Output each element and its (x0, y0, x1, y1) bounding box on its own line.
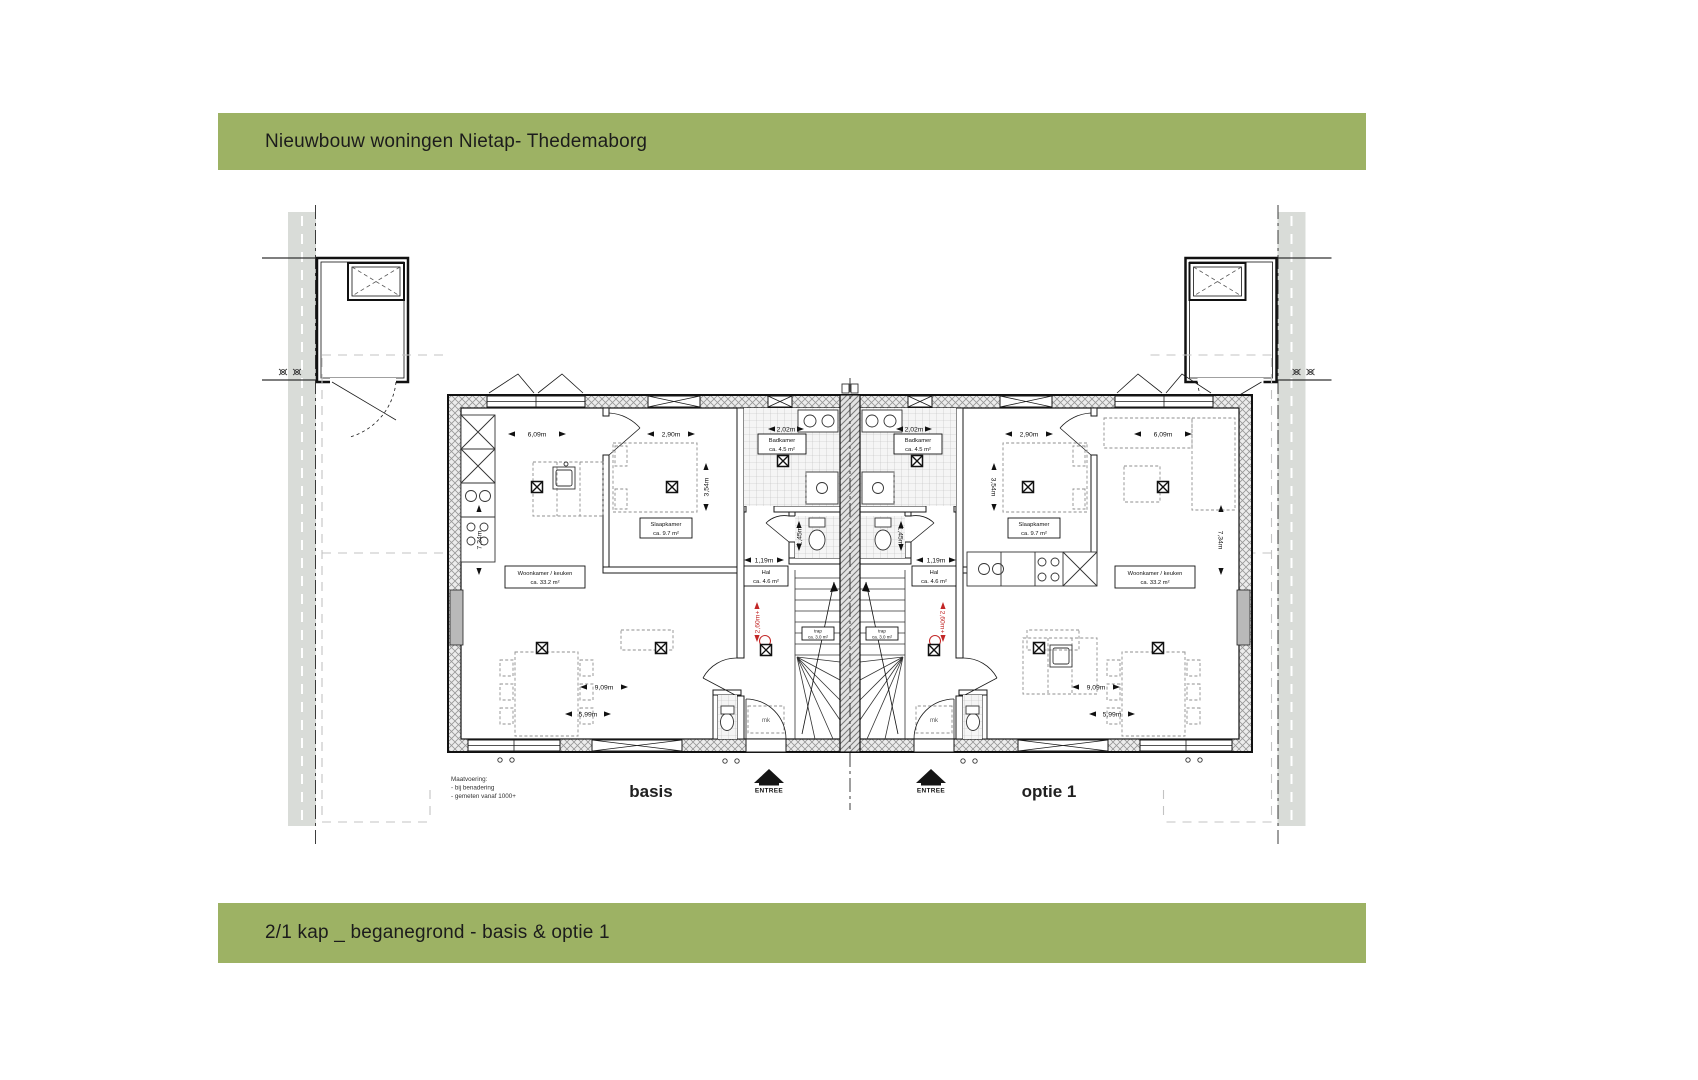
room-label-bedroom-right: Slaapkamer ca. 9.7 m² (1008, 518, 1060, 538)
svg-text:Slaapkamer: Slaapkamer (651, 522, 682, 528)
svg-text:1,19m: 1,19m (927, 557, 946, 564)
svg-text:Badkamer: Badkamer (905, 438, 931, 444)
entree-marker: ENTREE (916, 769, 946, 795)
room-label-bedroom-left: Slaapkamer ca. 9.7 m² (640, 518, 692, 538)
svg-text:5,99m: 5,99m (579, 711, 598, 718)
svg-text:ca. 4.5 m²: ca. 4.5 m² (769, 447, 795, 453)
svg-text:Badkamer: Badkamer (769, 438, 795, 444)
front-door-opening (746, 739, 786, 752)
svg-text:7,34m: 7,34m (1217, 531, 1224, 550)
light-point-icon (929, 645, 940, 656)
svg-text:ca. 4.6 m²: ca. 4.6 m² (753, 579, 779, 585)
light-point-icon (778, 456, 789, 467)
roadside-strip (288, 212, 316, 826)
drawing-sheet: Nieuwbouw woningen Nietap- Thedemaborg (0, 0, 1698, 1080)
svg-text:ca. 9.7 m²: ca. 9.7 m² (653, 531, 679, 537)
room-label-living-left: Woonkamer / keuken ca. 33.2 m² (505, 566, 585, 588)
svg-text:ca. 33.2 m²: ca. 33.2 m² (531, 580, 560, 586)
room-label-stairs-right: trap ca. 3.0 m² (866, 627, 898, 640)
mk-label-left: mk (762, 718, 771, 724)
svg-text:ca. 9.7 m²: ca. 9.7 m² (1021, 531, 1047, 537)
svg-text:5,99m: 5,99m (1103, 711, 1122, 718)
light-point-icon (532, 482, 543, 493)
svg-text:6,09m: 6,09m (528, 431, 547, 438)
entree-marker: ENTREE (754, 769, 784, 795)
measurement-note: Maatvoering: - bij benadering - gemeten … (451, 776, 516, 800)
light-point-icon (667, 482, 678, 493)
mk-label-right: mk (930, 718, 939, 724)
svg-text:Maatvoering:: Maatvoering: (451, 776, 488, 783)
svg-text:trap: trap (814, 629, 822, 634)
svg-text:ca. 3.0 m²: ca. 3.0 m² (872, 635, 893, 640)
svg-text:ENTREE: ENTREE (917, 788, 946, 795)
footer-banner: 2/1 kap _ beganegrond - basis & optie 1 (218, 903, 1366, 963)
svg-text:Woonkamer / keuken: Woonkamer / keuken (518, 571, 573, 577)
svg-text:2,90m: 2,90m (662, 431, 681, 438)
skylight (348, 263, 404, 300)
svg-text:7,34m: 7,34m (476, 530, 483, 549)
room-label-stairs-left: trap ca. 3.0 m² (802, 627, 834, 640)
svg-text:6,09m: 6,09m (1154, 431, 1173, 438)
svg-text:ca. 4.6 m²: ca. 4.6 m² (921, 579, 947, 585)
svg-text:2,60m+: 2,60m+ (939, 611, 946, 634)
svg-text:- bij benadering: - bij benadering (451, 785, 495, 792)
room-label-bathroom-right: Badkamer ca. 4.5 m² (894, 434, 942, 454)
svg-text:Woonkamer / keuken: Woonkamer / keuken (1128, 571, 1183, 577)
room-label-bathroom-left: Badkamer ca. 4.5 m² (758, 434, 806, 454)
svg-text:2,02m: 2,02m (777, 426, 796, 433)
light-point-icon (1023, 482, 1034, 493)
svg-text:2,90m: 2,90m (1020, 431, 1039, 438)
svg-text:- gemeten vanaf 1000+: - gemeten vanaf 1000+ (451, 793, 516, 800)
svg-text:ENTREE: ENTREE (755, 788, 784, 795)
svg-text:2,60m+: 2,60m+ (754, 611, 761, 634)
light-point-icon (1153, 643, 1164, 654)
light-point-icon (761, 645, 772, 656)
svg-text:9,09m: 9,09m (595, 684, 614, 691)
svg-text:Hal: Hal (762, 570, 771, 576)
svg-text:1,45m: 1,45m (796, 526, 803, 545)
unit-label-optie1: optie 1 (1022, 782, 1077, 801)
svg-text:1,45m: 1,45m (897, 527, 904, 546)
svg-text:Hal: Hal (930, 570, 939, 576)
shed-door-opening (330, 378, 396, 386)
svg-text:ca. 3.0 m²: ca. 3.0 m² (808, 635, 829, 640)
svg-text:Slaapkamer: Slaapkamer (1019, 522, 1050, 528)
unit-label-basis: basis (629, 782, 672, 801)
svg-text:ca. 33.2 m²: ca. 33.2 m² (1141, 580, 1170, 586)
svg-text:2,02m: 2,02m (905, 426, 924, 433)
svg-text:trap: trap (878, 629, 886, 634)
terrace-lines (322, 355, 448, 822)
svg-text:3,54m: 3,54m (990, 478, 997, 497)
room-label-hall-right: Hal ca. 4.6 m² (912, 566, 956, 586)
room-label-living-right: Woonkamer / keuken ca. 33.2 m² (1115, 566, 1195, 588)
sheet-subtitle: 2/1 kap _ beganegrond - basis & optie 1 (265, 922, 610, 944)
light-point-icon (1034, 643, 1045, 654)
party-wall (840, 378, 860, 810)
outbuilding (317, 258, 408, 437)
svg-text:9,09m: 9,09m (1087, 684, 1106, 691)
light-point-icon (656, 643, 667, 654)
site-left (262, 205, 448, 845)
room-label-hall-left: Hal ca. 4.6 m² (744, 566, 788, 586)
svg-text:3,54m: 3,54m (703, 477, 710, 496)
svg-text:1,19m: 1,19m (755, 557, 774, 564)
svg-text:ca. 4.5 m²: ca. 4.5 m² (905, 447, 931, 453)
light-point-icon (1158, 482, 1169, 493)
light-point-icon (912, 456, 923, 467)
light-point-icon (537, 643, 548, 654)
side-wall-panel (450, 590, 463, 645)
